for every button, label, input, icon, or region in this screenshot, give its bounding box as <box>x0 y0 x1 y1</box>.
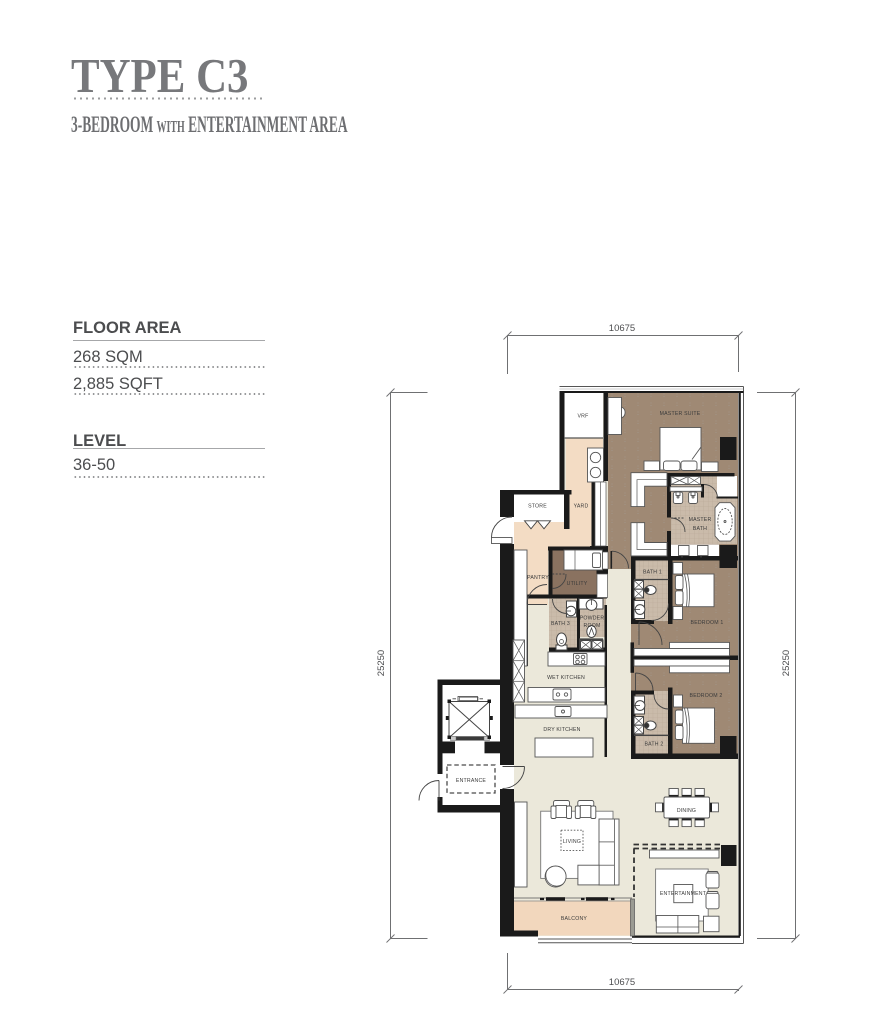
svg-text:DINING: DINING <box>677 808 696 814</box>
svg-text:BALCONY: BALCONY <box>561 916 588 922</box>
svg-text:BATH 3: BATH 3 <box>551 621 570 627</box>
svg-text:DRY KITCHEN: DRY KITCHEN <box>543 727 580 733</box>
svg-text:ENTERTAINMENT: ENTERTAINMENT <box>660 891 707 897</box>
svg-text:MASTER SUITE: MASTER SUITE <box>660 411 701 417</box>
svg-text:BATH 1: BATH 1 <box>643 570 662 576</box>
svg-text:BEDROOM 1: BEDROOM 1 <box>691 620 724 626</box>
svg-text:25250: 25250 <box>781 650 792 676</box>
svg-text:MASTER: MASTER <box>689 517 712 523</box>
svg-text:YARD: YARD <box>574 504 589 510</box>
svg-text:25250: 25250 <box>376 650 387 676</box>
svg-text:PANTRY: PANTRY <box>527 575 549 581</box>
svg-text:LIVING: LIVING <box>563 839 581 845</box>
svg-text:VRF: VRF <box>578 414 589 420</box>
svg-text:ROOM: ROOM <box>584 623 601 629</box>
svg-text:BEDROOM 2: BEDROOM 2 <box>690 693 723 699</box>
svg-text:POWDER: POWDER <box>580 616 605 622</box>
svg-text:10675: 10675 <box>609 323 635 334</box>
svg-text:UTILITY: UTILITY <box>567 581 588 587</box>
svg-text:BATH 2: BATH 2 <box>645 742 664 748</box>
svg-text:BATH: BATH <box>693 526 707 532</box>
svg-text:STORE: STORE <box>528 504 547 510</box>
svg-text:ENTRANCE: ENTRANCE <box>456 778 486 784</box>
svg-text:10675: 10675 <box>609 977 635 988</box>
svg-text:WET KITCHEN: WET KITCHEN <box>547 675 585 681</box>
